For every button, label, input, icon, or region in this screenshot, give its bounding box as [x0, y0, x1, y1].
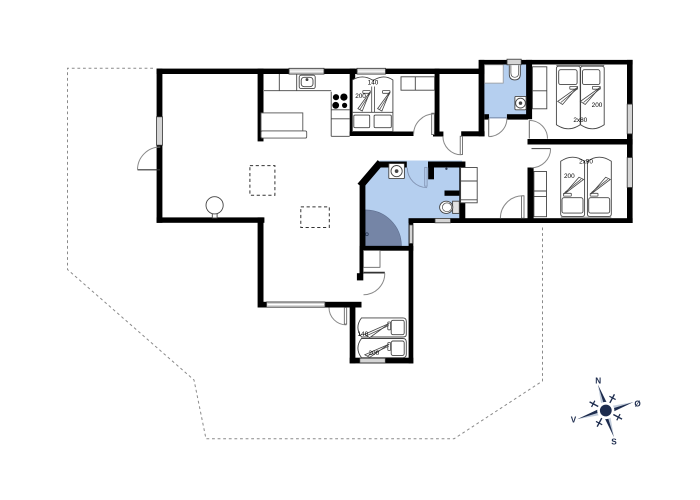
svg-text:2x80: 2x80 [573, 117, 587, 124]
svg-text:200: 200 [592, 102, 603, 109]
svg-text:N: N [595, 377, 601, 386]
svg-text:S: S [611, 438, 617, 447]
svg-text:140: 140 [358, 331, 369, 338]
svg-text:Ø: Ø [634, 400, 641, 409]
svg-text:200: 200 [369, 350, 380, 357]
svg-text:V: V [571, 416, 577, 425]
svg-text:2x90: 2x90 [579, 158, 593, 165]
svg-text:200: 200 [355, 93, 366, 100]
svg-text:140: 140 [368, 80, 379, 87]
svg-text:200: 200 [564, 173, 575, 180]
